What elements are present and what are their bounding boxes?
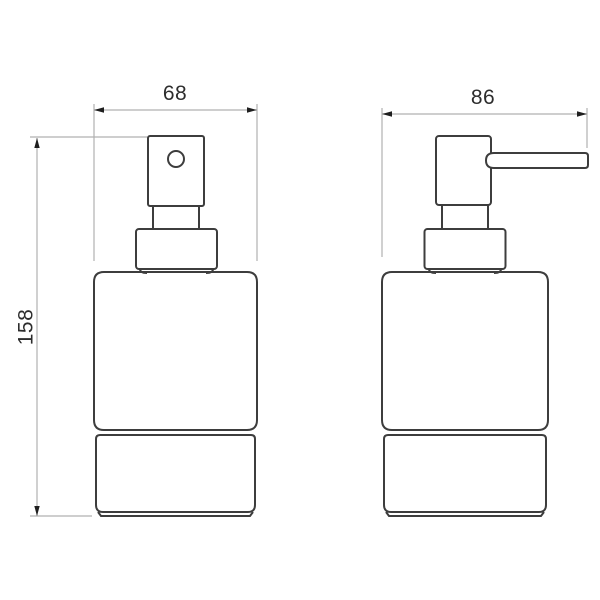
arrow-height-bottom-icon bbox=[34, 506, 39, 516]
front-pump-stem bbox=[153, 206, 199, 229]
front-pump-head bbox=[148, 136, 204, 206]
front-pump-collar bbox=[136, 229, 217, 269]
side-bottle-band bbox=[384, 435, 546, 512]
side-pump-head bbox=[436, 136, 491, 205]
side-pump-collar bbox=[425, 229, 506, 269]
arrow-height-top-icon bbox=[34, 138, 39, 148]
front-bottle-band bbox=[96, 435, 255, 512]
dimension-label-height: 158 bbox=[16, 309, 37, 346]
technical-drawing-svg bbox=[0, 0, 600, 600]
front-view bbox=[94, 136, 257, 516]
dimension-label-front-width: 68 bbox=[163, 83, 187, 104]
arrow-front-left-icon bbox=[94, 107, 104, 112]
arrow-front-right-icon bbox=[247, 107, 257, 112]
front-bottle-body bbox=[94, 272, 257, 430]
side-pump-stem bbox=[442, 205, 488, 229]
arrow-side-right-icon bbox=[577, 111, 587, 116]
side-pump-spout bbox=[486, 153, 588, 168]
arrow-side-left-icon bbox=[382, 111, 392, 116]
technical-drawing-page: 68 86 158 bbox=[0, 0, 600, 600]
dimension-label-side-depth: 86 bbox=[471, 87, 495, 108]
front-nozzle-hole-icon bbox=[168, 151, 184, 167]
side-bottle-body bbox=[382, 272, 548, 430]
side-view bbox=[382, 136, 588, 516]
